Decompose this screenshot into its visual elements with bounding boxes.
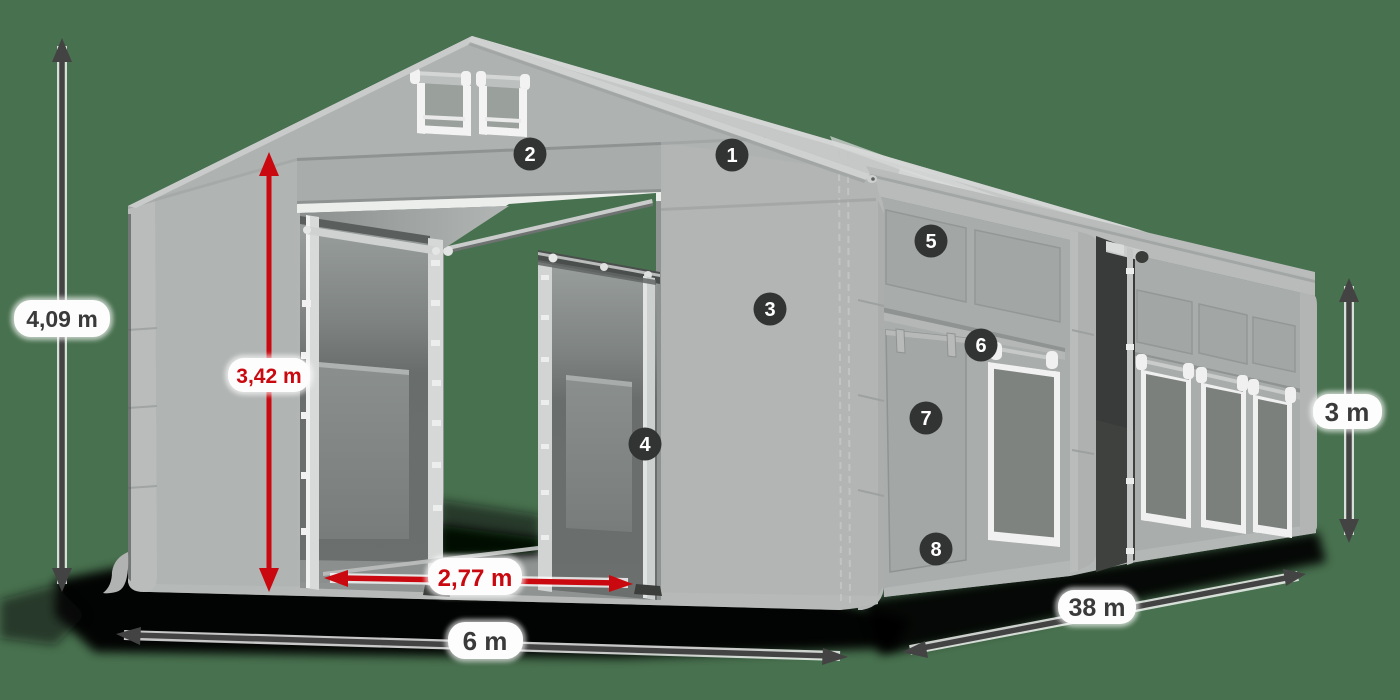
svg-text:2,77 m: 2,77 m xyxy=(438,565,513,592)
svg-text:3: 3 xyxy=(764,299,775,321)
svg-text:1: 1 xyxy=(726,145,737,167)
svg-text:38 m: 38 m xyxy=(1069,594,1126,622)
svg-text:5: 5 xyxy=(925,231,936,253)
svg-text:6: 6 xyxy=(975,335,986,357)
svg-text:4: 4 xyxy=(639,434,651,456)
svg-text:4,09 m: 4,09 m xyxy=(26,306,98,332)
svg-text:8: 8 xyxy=(930,539,941,561)
svg-text:2: 2 xyxy=(524,144,535,166)
svg-text:3,42 m: 3,42 m xyxy=(236,365,301,388)
svg-text:3 m: 3 m xyxy=(1325,397,1370,427)
svg-text:7: 7 xyxy=(920,408,931,430)
svg-text:6 m: 6 m xyxy=(463,626,508,656)
